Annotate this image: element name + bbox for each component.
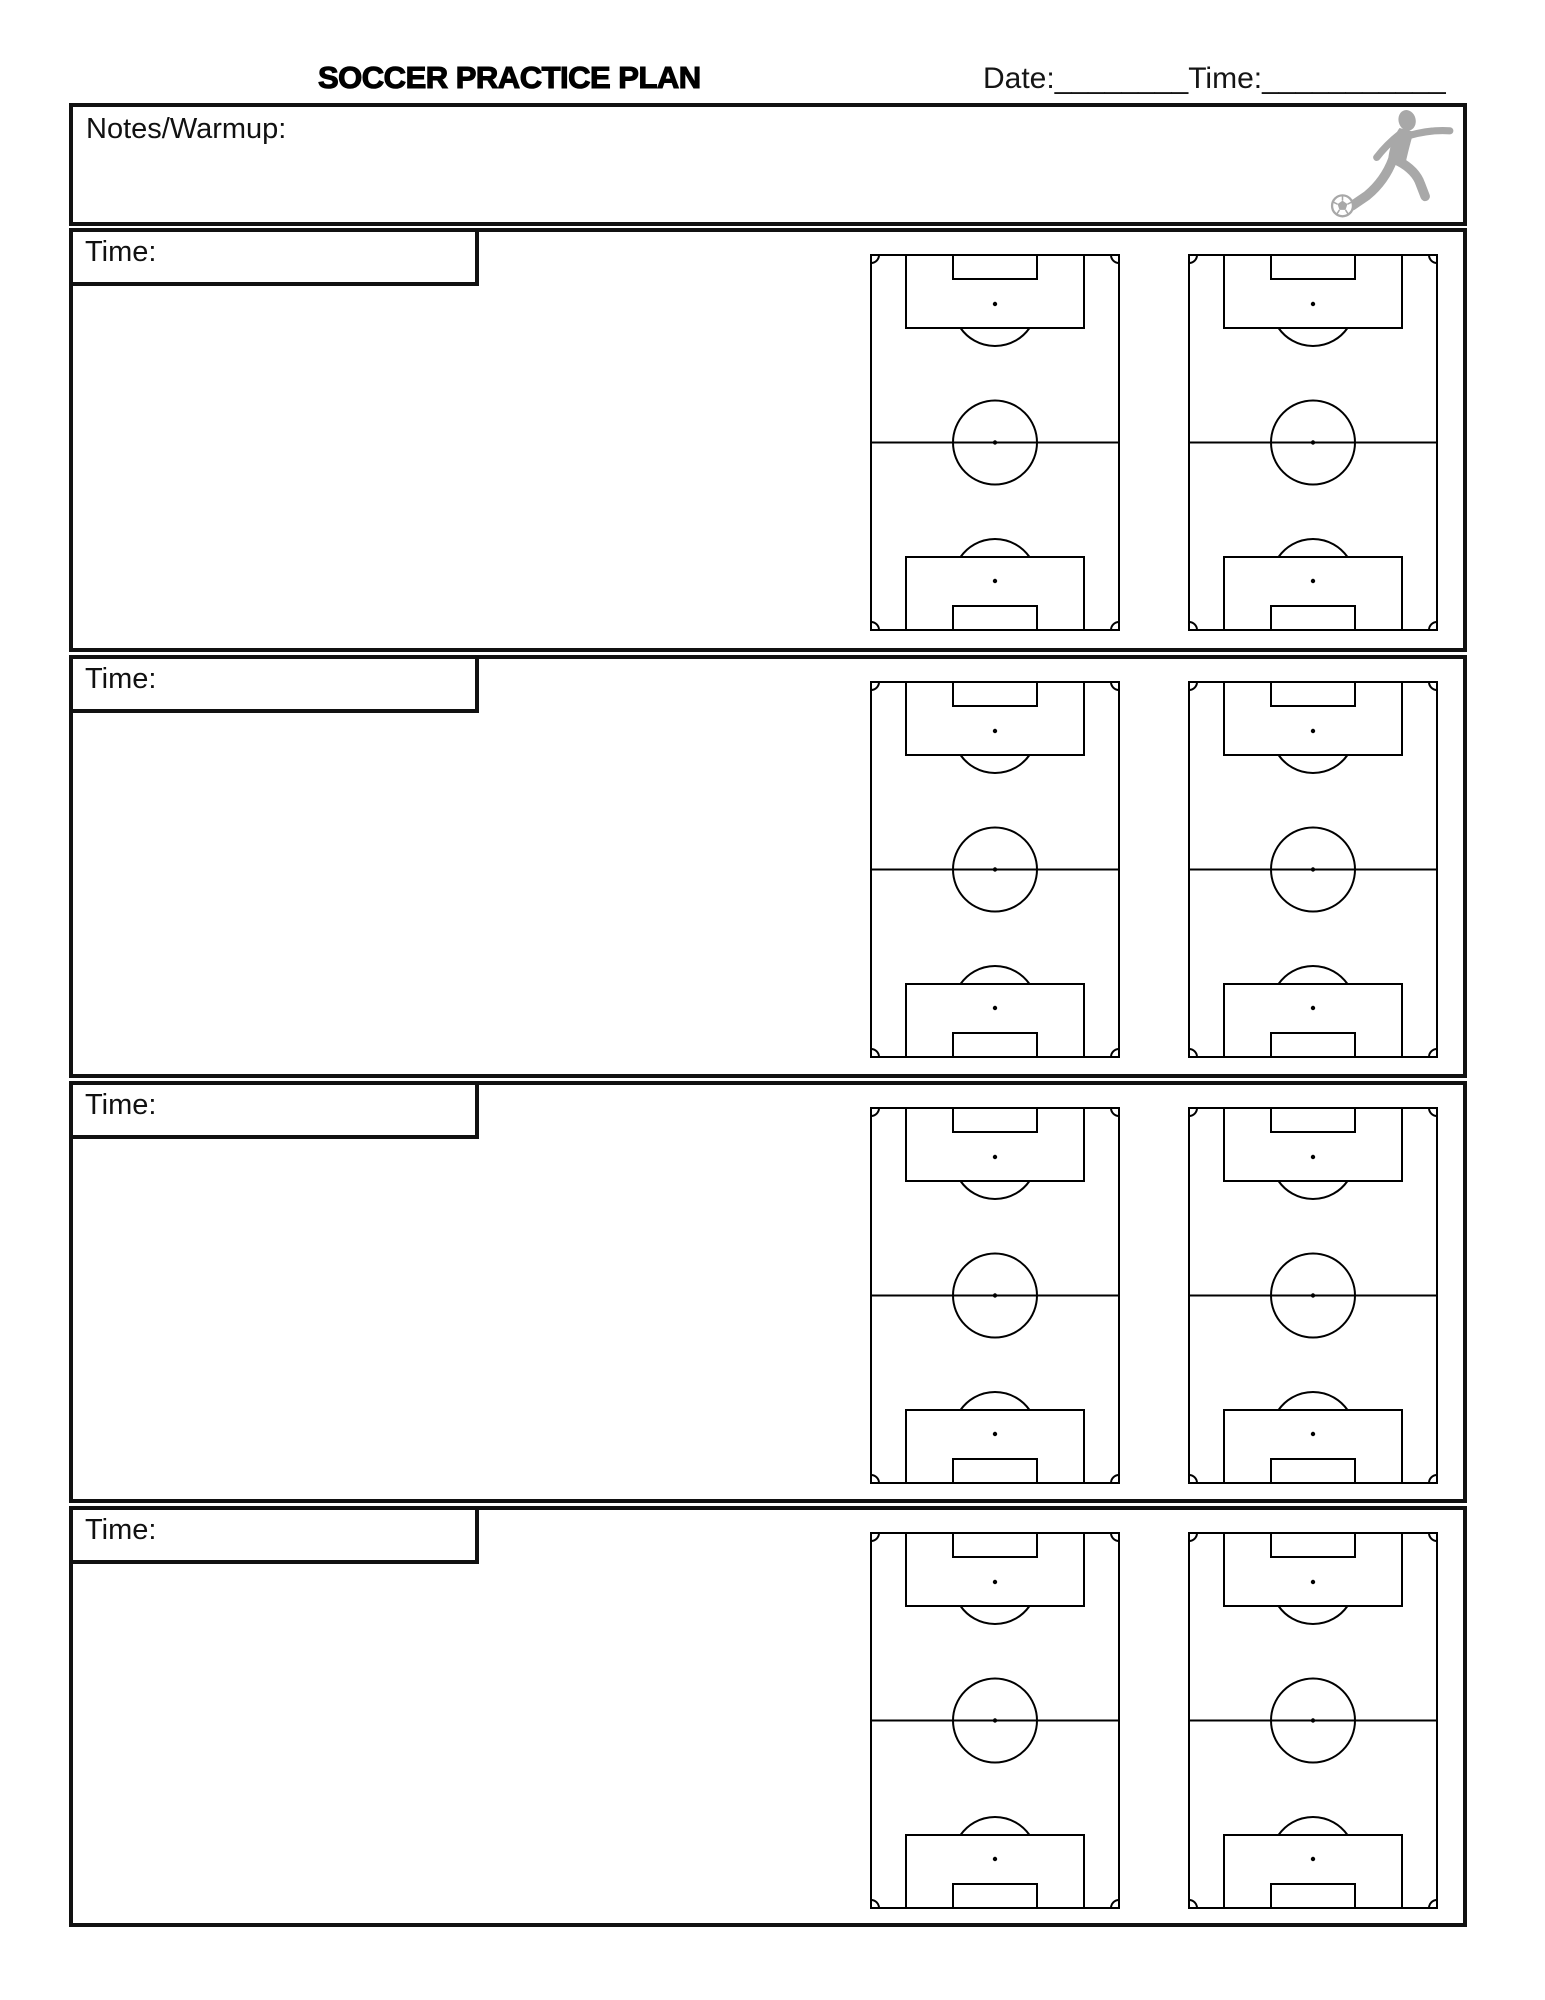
soccer-player-icon <box>1323 108 1457 222</box>
soccer-field-diagram <box>1188 1107 1438 1484</box>
date-label: Date: <box>983 62 1055 95</box>
player-back-arm <box>1409 131 1450 136</box>
soccer-field-diagram <box>870 254 1120 631</box>
time-blank-line: ___________ <box>1262 62 1446 95</box>
time-tab-1: Time: <box>69 228 479 286</box>
practice-section-3: Time: <box>69 1081 1467 1503</box>
player-trailing-leg <box>1399 161 1426 196</box>
soccer-player-kicking-icon <box>1323 108 1457 222</box>
soccer-field-diagram <box>870 681 1120 1058</box>
soccer-field-diagram <box>1188 681 1438 1058</box>
practice-section-4: Time: <box>69 1506 1467 1927</box>
notes-warmup-label: Notes/Warmup: <box>73 107 1463 146</box>
player-kicking-leg <box>1352 159 1393 206</box>
soccer-practice-plan-page: SOCCER PRACTICE PLAN Date:________Time:_… <box>0 0 1545 2000</box>
time-label: Time: <box>1188 62 1262 95</box>
soccer-field-diagram <box>870 1532 1120 1909</box>
soccer-field-diagram <box>1188 1532 1438 1909</box>
notes-warmup-box: Notes/Warmup: <box>69 103 1467 226</box>
soccer-field-diagram <box>870 1107 1120 1484</box>
time-tab-2: Time: <box>69 655 479 713</box>
practice-section-1: Time: <box>69 228 1467 652</box>
time-tab-3: Time: <box>69 1081 479 1139</box>
practice-section-2: Time: <box>69 655 1467 1078</box>
date-time-row: Date:________Time:___________ <box>983 62 1446 96</box>
soccer-field-diagram <box>1188 254 1438 631</box>
date-blank-line: ________ <box>1055 62 1188 95</box>
time-tab-4: Time: <box>69 1506 479 1564</box>
soccer-ball-icon <box>1332 195 1353 216</box>
page-title: SOCCER PRACTICE PLAN <box>318 60 701 96</box>
